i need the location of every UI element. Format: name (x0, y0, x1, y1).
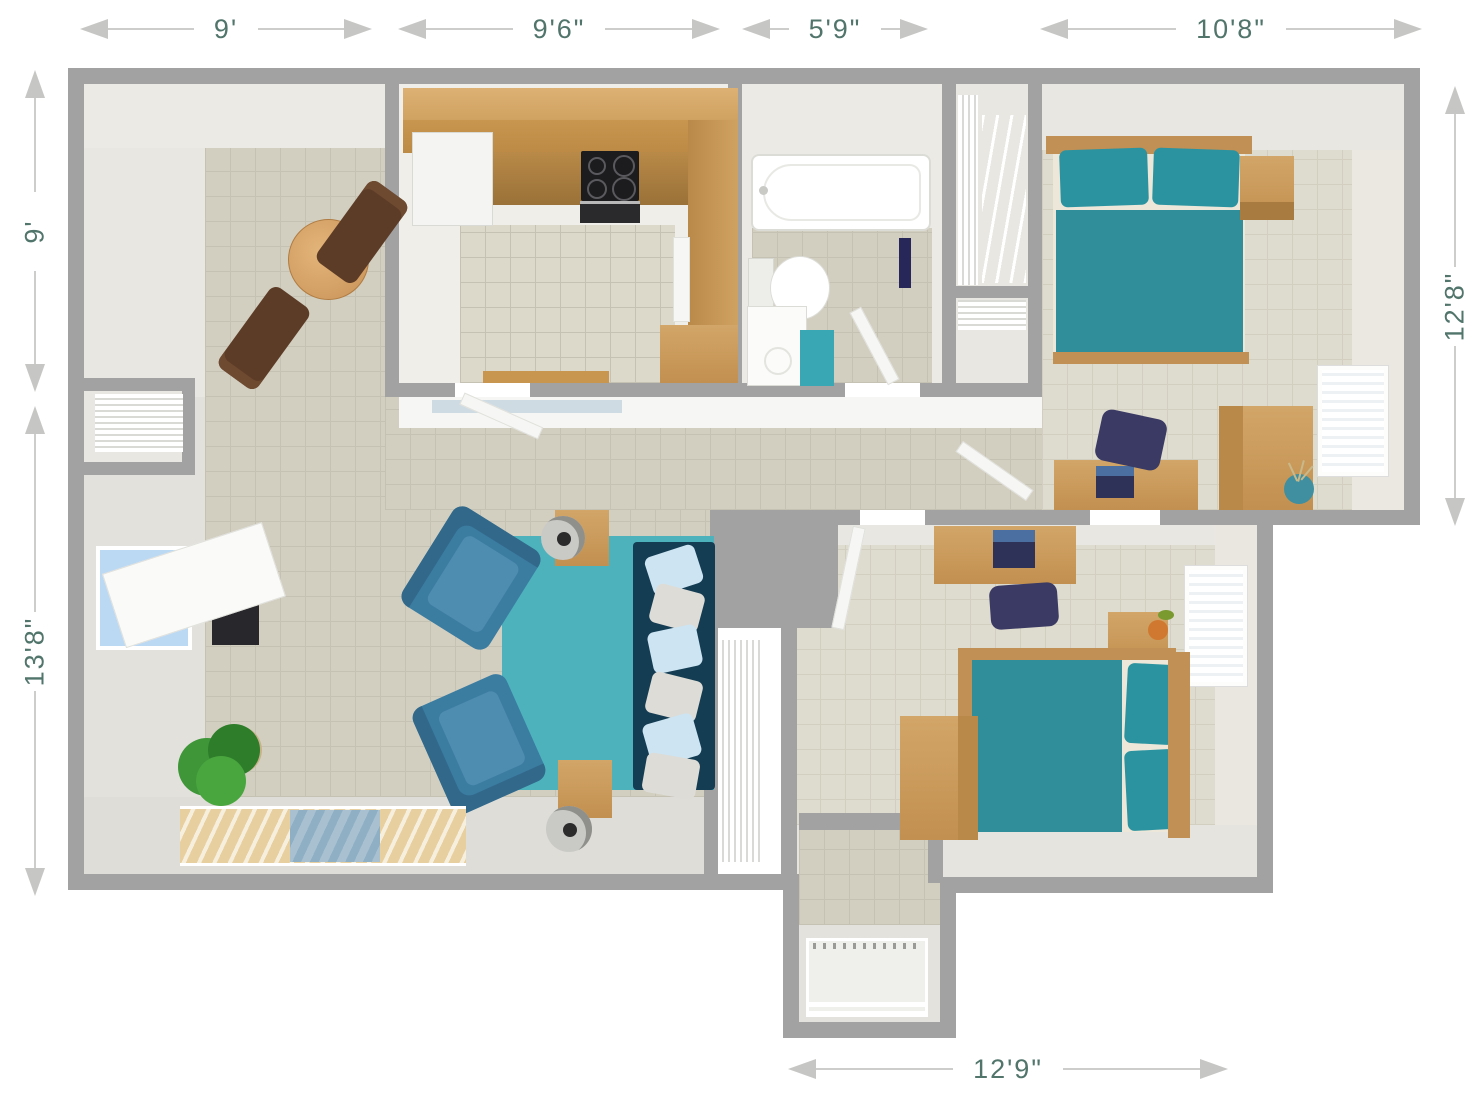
faucet-icon (759, 186, 768, 195)
wall-dining-kitchen (385, 84, 399, 397)
bathtub (751, 154, 931, 231)
bedroom2-window (1185, 566, 1247, 686)
dimension-top-kitchen: 9'6" (398, 14, 720, 44)
bathtub-basin (763, 164, 921, 221)
arrow-down-icon (25, 868, 45, 896)
small-plant-leaves (1158, 610, 1174, 620)
wall-dining-closet-right (182, 378, 195, 475)
wall-dining-closet-top (84, 378, 195, 391)
burner-icon (588, 157, 606, 175)
bench-cushion (290, 810, 380, 862)
entry-step (806, 1002, 928, 1007)
bedroom2-dresser (900, 716, 978, 840)
arrow-right-icon (900, 19, 928, 39)
dimension-left-dining: 9' (18, 70, 52, 392)
cooktop (581, 151, 639, 201)
towel (899, 238, 911, 288)
doormat-ridges (813, 943, 921, 949)
kitchen-pass-through-ledge (483, 371, 609, 383)
wall-exterior-east-upper (1404, 84, 1420, 525)
bedroom2-headboard (1168, 652, 1190, 838)
arrow-down-icon (25, 364, 45, 392)
bedroom2-blanket (972, 660, 1122, 832)
bedroom2-desk-chair (989, 582, 1060, 631)
dining-wall-face (84, 84, 385, 148)
burner-icon (613, 155, 635, 177)
wall-bedrooms-south-b (925, 510, 1090, 525)
wall-hall-closet-east (781, 628, 797, 874)
arrow-right-icon (692, 19, 720, 39)
wall-closet-bedroom1 (1028, 84, 1042, 397)
bedroom1-blanket (1056, 210, 1243, 358)
floor-plan: 9' 9'6" 5'9" 10'8" 9' 13'8" 12'8" 12'9" (0, 0, 1484, 1118)
wall-exterior-north (68, 68, 1420, 84)
laptop (993, 530, 1035, 568)
small-closet-louver-door (958, 300, 1026, 330)
linen-closet-louver-door (958, 95, 978, 285)
structural-block (710, 512, 838, 628)
wall-closet-divider (956, 286, 1028, 298)
arrow-right-icon (1394, 19, 1422, 39)
bedroom1-pillow (1152, 148, 1240, 208)
arrow-up-icon (25, 70, 45, 98)
hall-closet-louver-door (718, 640, 764, 862)
arrow-up-icon (25, 406, 45, 434)
wall-hall-north-a (385, 383, 455, 397)
wall-bedroom1-south-east (1273, 510, 1420, 525)
dimension-label: 12'8" (1416, 271, 1484, 341)
oven-front (580, 201, 640, 223)
dimension-label: 13'8" (0, 616, 75, 686)
arrow-left-icon (1040, 19, 1068, 39)
arrow-right-icon (1200, 1059, 1228, 1079)
bedroom1-footboard (1053, 352, 1249, 364)
bedroom1-window (1318, 366, 1388, 476)
kitchen-cabinet-right-run (688, 120, 738, 326)
potted-plant (196, 756, 246, 806)
dimension-right-bedroom1: 12'8" (1438, 86, 1472, 526)
bedroom1-plant (1284, 474, 1314, 504)
arrow-left-icon (398, 19, 426, 39)
table-lamp-core (563, 823, 577, 837)
entry-vestibule-tile (799, 830, 940, 925)
small-plant-pot (1148, 620, 1168, 640)
burner-icon (612, 177, 636, 201)
bedroom1-nightstand (1240, 156, 1294, 220)
linen-closet-wire-shelves (982, 115, 1026, 283)
arrow-left-icon (742, 19, 770, 39)
arrow-left-icon (80, 19, 108, 39)
dining-closet-louver-door (95, 394, 183, 452)
wall-vestibule-west (783, 874, 799, 1038)
dimension-label: 9'6" (513, 14, 606, 45)
dimension-label: 9' (0, 219, 74, 243)
wall-exterior-west (68, 84, 84, 890)
wall-bedroom2-south (940, 877, 1273, 893)
table-lamp-core (557, 532, 571, 546)
wall-dining-closet-bottom (84, 462, 195, 475)
wall-vestibule-east (940, 877, 956, 1038)
dimension-label: 5'9" (789, 14, 882, 45)
wall-exterior-south-main (68, 874, 799, 890)
kitchen-lower-cabinet-white (673, 237, 690, 322)
laptop (1096, 466, 1134, 498)
dimension-bottom-bedroom2: 12'9" (788, 1052, 1228, 1086)
arrow-up-icon (1445, 86, 1465, 114)
arrow-down-icon (1445, 498, 1465, 526)
dimension-label: 10'8" (1176, 14, 1286, 45)
bath-mat (800, 330, 834, 386)
sink-icon (764, 347, 792, 375)
entry-step (806, 1012, 928, 1017)
kitchen-tile (460, 225, 675, 383)
kitchen-upper-cabinets (403, 88, 738, 121)
arrow-right-icon (344, 19, 372, 39)
refrigerator (412, 132, 493, 226)
burner-icon (587, 179, 607, 199)
bedroom1-pillow (1059, 147, 1149, 207)
wall-hall-north-c (920, 383, 1042, 397)
dimension-label: 9' (194, 14, 258, 45)
bathroom-vanity (747, 306, 807, 386)
kitchen-cabinet-corner (660, 325, 738, 383)
dimension-top-bath: 5'9" (742, 14, 928, 44)
arrow-left-icon (788, 1059, 816, 1079)
dimension-top-dining: 9' (80, 14, 372, 44)
armchair-cushion (436, 689, 527, 788)
dimension-label: 12'9" (953, 1054, 1063, 1085)
wall-vestibule-south (783, 1022, 956, 1038)
wall-bath-closet (942, 84, 956, 397)
wall-bedroom2-east (1257, 510, 1273, 893)
dimension-top-bedroom1: 10'8" (1040, 14, 1422, 44)
dimension-left-living: 13'8" (18, 406, 52, 896)
